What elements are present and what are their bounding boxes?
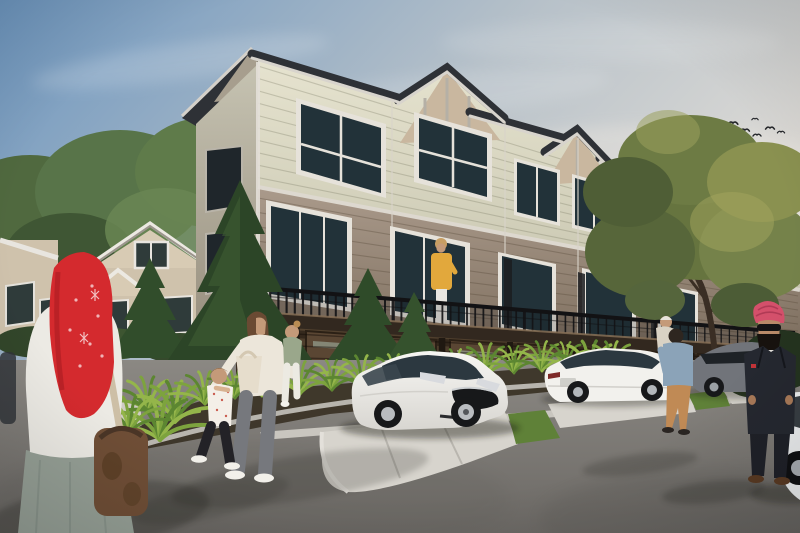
rendering-canvas bbox=[0, 0, 800, 533]
vignette-overlay bbox=[0, 0, 800, 533]
townhouse-rendering bbox=[0, 0, 800, 533]
